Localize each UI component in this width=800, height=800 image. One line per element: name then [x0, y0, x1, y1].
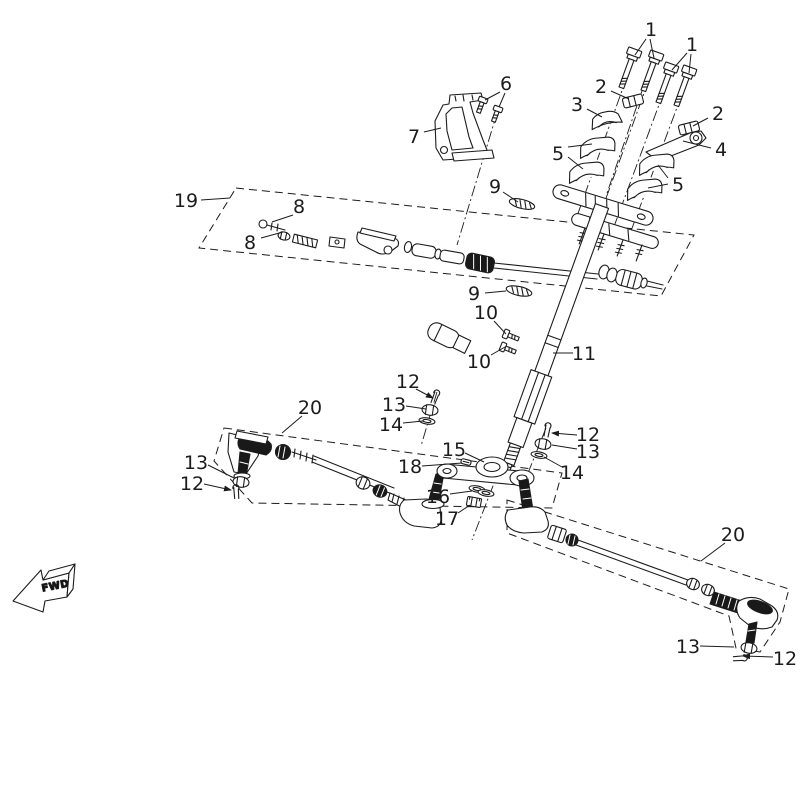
ring — [403, 241, 412, 253]
adjuster-nut — [354, 475, 371, 491]
inner-ball-housing — [505, 507, 548, 533]
callout-label-10: 10 — [467, 351, 491, 373]
callout-label-17: 17 — [435, 508, 459, 530]
leader-line — [552, 445, 577, 449]
part-20-left-tie-rod — [228, 431, 444, 528]
part-1-bolt — [637, 50, 664, 93]
callout-label-15: 15 — [442, 439, 466, 461]
callout-label-5: 5 — [552, 143, 564, 165]
callout-label-11: 11 — [572, 343, 596, 365]
leader-line — [611, 91, 629, 99]
callout-label-2: 2 — [712, 103, 724, 125]
leader-line — [552, 433, 577, 435]
callout-label-7: 7 — [408, 126, 420, 148]
part-6-screw — [489, 105, 503, 123]
leader-line — [204, 484, 231, 490]
leader-line — [272, 215, 293, 222]
callout-label-16: 16 — [426, 486, 450, 508]
leader-line — [700, 646, 734, 647]
part-13-nut — [534, 437, 552, 450]
adjuster-nut — [685, 577, 701, 592]
callout-label-12: 12 — [773, 648, 797, 670]
part-3-clamp — [589, 108, 623, 129]
callout-layer: 1123245567919889101011121314201312151812… — [174, 19, 797, 670]
tie-rod-shaft — [314, 456, 394, 488]
callout-label-13: 13 — [382, 394, 406, 416]
leader-line — [450, 491, 472, 494]
part-10-screw — [502, 329, 520, 343]
part-9-washer-bottom — [505, 284, 532, 298]
callout-label-9: 9 — [489, 176, 501, 198]
part-1-bolt — [652, 62, 679, 105]
callout-label-20: 20 — [721, 524, 745, 546]
diagram-canvas: FWD 112324556791988910101112131420131215… — [0, 0, 800, 800]
callout-label-14: 14 — [560, 462, 584, 484]
callout-label-12: 12 — [180, 473, 204, 495]
right-coupler — [614, 268, 643, 290]
part-20-right-tie-rod — [505, 479, 778, 664]
tie-rod-shaft — [578, 540, 688, 580]
handlebar-clamp-stack — [551, 47, 706, 262]
part-8-bolt — [259, 220, 267, 228]
callout-label-6: 6 — [500, 73, 512, 95]
part-5-clamp — [636, 151, 676, 177]
callout-label-8: 8 — [244, 232, 256, 254]
part-2-block — [622, 94, 644, 109]
callout-label-20: 20 — [298, 397, 322, 419]
leader-line — [201, 198, 230, 200]
callout-label-1: 1 — [686, 34, 698, 56]
callout-label-13: 13 — [184, 452, 208, 474]
leader-line — [485, 291, 506, 293]
callout-label-8: 8 — [293, 196, 305, 218]
callout-label-12: 12 — [396, 371, 420, 393]
part-1-bolt — [615, 47, 642, 90]
fwd-arrow: FWD — [13, 564, 75, 612]
callout-label-18: 18 — [398, 456, 422, 478]
callout-label-3: 3 — [571, 94, 583, 116]
part-5-clamp — [577, 134, 617, 160]
part-8-nut — [277, 231, 290, 241]
callout-label-4: 4 — [715, 139, 727, 161]
callout-label-19: 19 — [174, 190, 198, 212]
callout-label-10: 10 — [474, 302, 498, 324]
part-13-castle-nut — [740, 641, 758, 654]
callout-label-1: 1 — [645, 19, 657, 41]
ribbed-coupler — [465, 252, 496, 273]
callout-label-14: 14 — [379, 414, 403, 436]
part-14-washer — [531, 451, 548, 460]
spring — [292, 234, 317, 248]
clevis — [329, 237, 345, 248]
leader-line — [485, 92, 500, 100]
part-5-clamp — [566, 159, 606, 185]
coupler-sleeve — [411, 243, 437, 259]
callout-label-13: 13 — [576, 441, 600, 463]
callout-label-13: 13 — [676, 636, 700, 658]
part-12-cotter-pin — [732, 653, 748, 663]
ball-stud — [746, 622, 757, 643]
callout-label-5: 5 — [672, 174, 684, 196]
leader-line — [208, 465, 234, 478]
jam-nut — [547, 525, 567, 543]
dashed-boxes — [199, 188, 789, 652]
box-20-right-outline — [507, 500, 789, 652]
leader-line — [499, 93, 505, 107]
part-5-clamp — [624, 176, 664, 202]
part-13-nut — [421, 404, 438, 417]
part-12-cotter-pin — [544, 423, 551, 437]
sleeve — [439, 249, 465, 264]
callout-label-2: 2 — [595, 76, 607, 98]
